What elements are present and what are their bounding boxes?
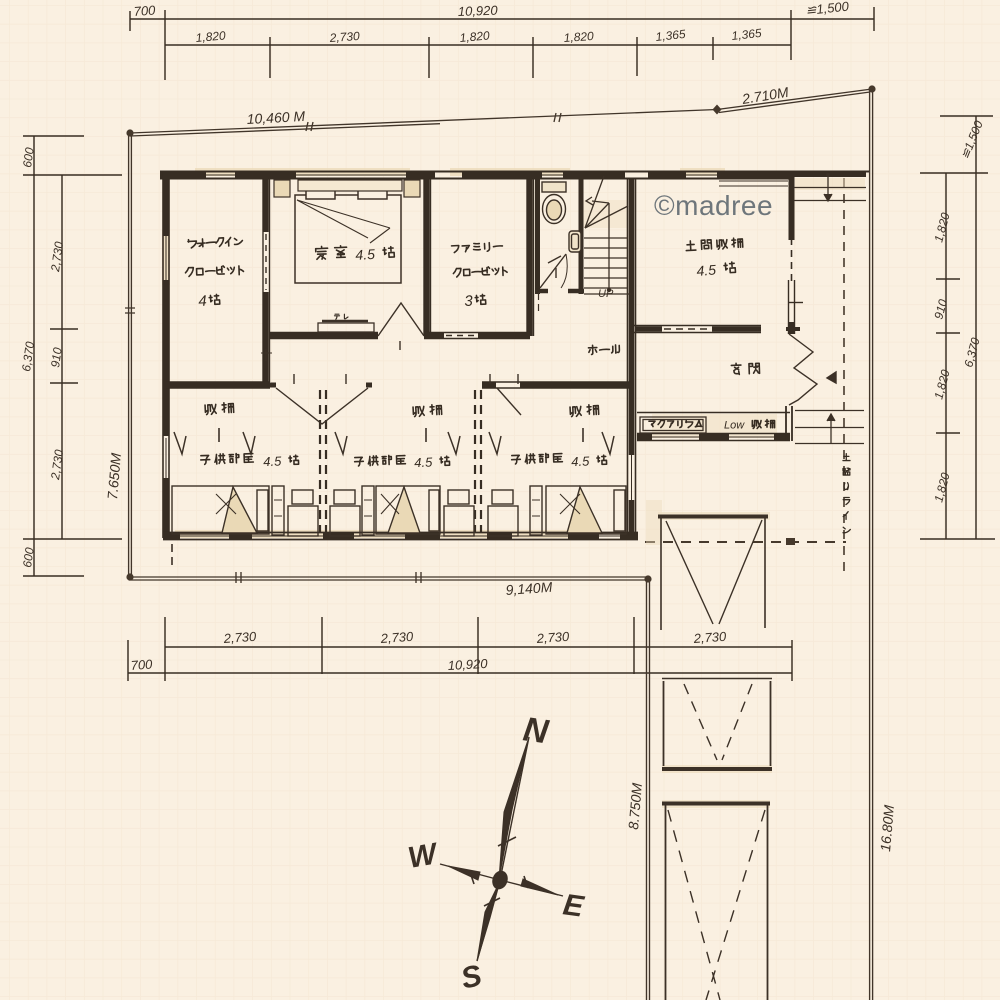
svg-text:700: 700 <box>130 656 153 673</box>
svg-text:10,460 M: 10,460 M <box>246 108 305 127</box>
svg-text:4.5: 4.5 <box>696 262 717 279</box>
svg-text:©madree: ©madree <box>654 190 773 221</box>
svg-text:2,730: 2,730 <box>328 29 360 45</box>
svg-text:1,820: 1,820 <box>459 28 490 45</box>
svg-text:2,730: 2,730 <box>379 629 414 646</box>
svg-text:1,820: 1,820 <box>195 28 226 45</box>
svg-text:3: 3 <box>464 293 474 310</box>
svg-text:4.5: 4.5 <box>263 454 282 470</box>
svg-text:10,920: 10,920 <box>458 3 499 19</box>
svg-text:600: 600 <box>20 546 37 568</box>
svg-text:9,140M: 9,140M <box>505 579 553 598</box>
svg-text:4.5: 4.5 <box>571 454 590 470</box>
svg-text:600: 600 <box>20 146 37 168</box>
svg-text:2,730: 2,730 <box>222 629 257 646</box>
svg-text:2,730: 2,730 <box>535 629 570 646</box>
svg-text:1,820: 1,820 <box>563 29 594 45</box>
svg-text:2,730: 2,730 <box>692 629 727 646</box>
svg-text:UP: UP <box>598 288 614 300</box>
svg-text:Low: Low <box>724 420 745 432</box>
svg-text:4: 4 <box>198 293 207 310</box>
svg-text:4.5: 4.5 <box>414 455 433 471</box>
svg-text:700: 700 <box>133 2 156 19</box>
svg-text:910: 910 <box>48 346 65 368</box>
svg-text:4.5: 4.5 <box>355 246 375 263</box>
svg-text:10,920: 10,920 <box>447 656 488 673</box>
